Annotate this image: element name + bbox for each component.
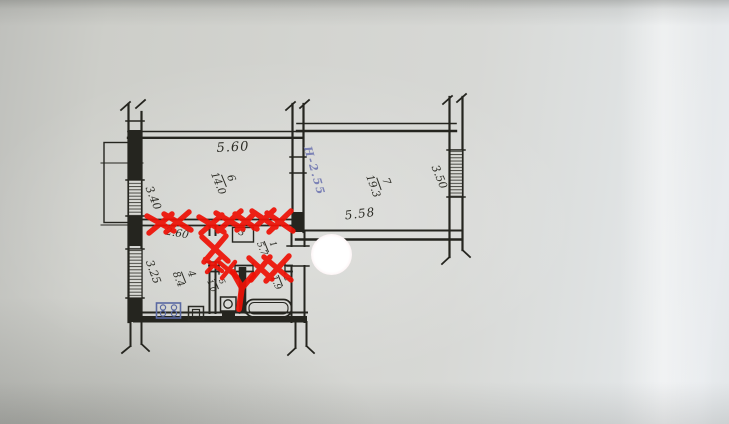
floor-plan-photo: 5.60 6 14.0 3.40 3.25 2.60 4 8.4 3 1 5.7… (0, 0, 729, 424)
red-annotations (0, 0, 729, 424)
demolition-x-marks (147, 210, 293, 281)
hole-punch-circle (311, 234, 352, 275)
red-arrow-annotation (233, 272, 253, 309)
